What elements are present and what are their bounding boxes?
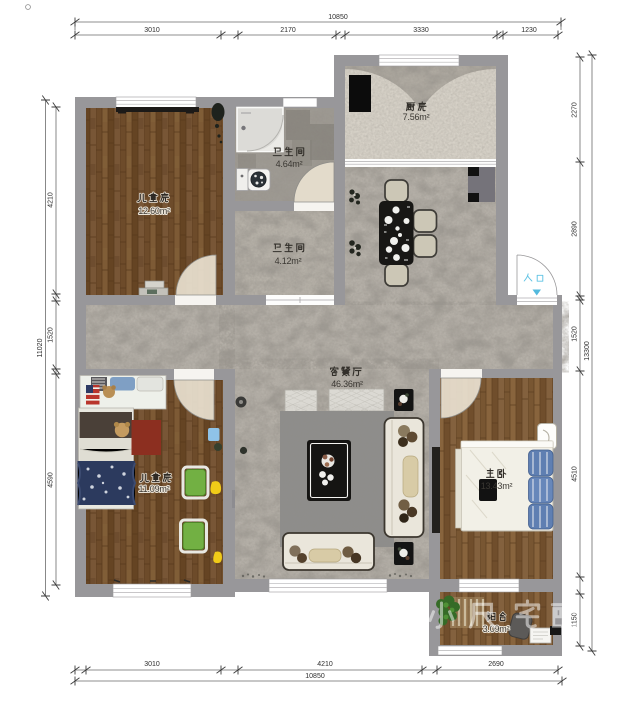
svg-text:4.12m²: 4.12m² (275, 256, 302, 266)
svg-text:10850: 10850 (305, 673, 325, 680)
svg-text:13300: 13300 (584, 341, 591, 361)
svg-text:3010: 3010 (144, 661, 160, 668)
svg-text:3.09m²: 3.09m² (483, 624, 510, 634)
svg-text:11.09m²: 11.09m² (139, 484, 170, 494)
svg-text:2170: 2170 (280, 27, 296, 34)
svg-text:4510: 4510 (572, 466, 579, 482)
svg-text:4210: 4210 (48, 192, 55, 208)
svg-text:1520: 1520 (48, 327, 55, 343)
svg-text:13.43m²: 13.43m² (481, 481, 513, 491)
svg-text:12.60m²: 12.60m² (138, 206, 170, 216)
svg-text:2890: 2890 (572, 221, 579, 237)
svg-text:3330: 3330 (413, 27, 429, 34)
svg-text:3010: 3010 (144, 27, 160, 34)
svg-text:11020: 11020 (37, 338, 44, 357)
svg-text:4.64m²: 4.64m² (276, 159, 303, 169)
svg-text:10850: 10850 (328, 14, 348, 21)
svg-text:2690: 2690 (488, 661, 504, 668)
svg-text:1520: 1520 (572, 326, 579, 342)
svg-text:46.36m²: 46.36m² (331, 379, 363, 389)
svg-text:1230: 1230 (521, 27, 537, 34)
svg-text:7.56m²: 7.56m² (403, 112, 430, 122)
svg-text:2270: 2270 (572, 102, 579, 118)
svg-text:4210: 4210 (317, 661, 333, 668)
svg-text:4590: 4590 (48, 472, 55, 488)
